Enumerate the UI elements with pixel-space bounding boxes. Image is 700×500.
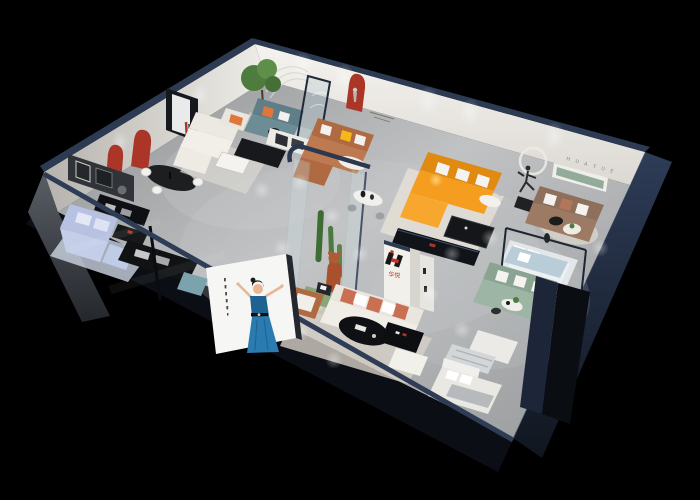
hair-bun: [251, 278, 256, 283]
table-plant: [570, 224, 575, 229]
isometric-floorplan: H U A Y U E: [0, 0, 700, 500]
dining-chair: [152, 186, 162, 194]
tree-canopy: [257, 59, 277, 79]
lit-table-lamp: [429, 173, 443, 187]
black-vase: [361, 191, 366, 198]
round-wall-plate: [118, 186, 127, 195]
brand-logo-characters: 华悦: [388, 270, 401, 280]
chair: [376, 213, 385, 220]
dining-chair: [193, 178, 203, 186]
chair: [497, 190, 505, 196]
showroom-render: H U A Y U E: [0, 0, 700, 500]
round-side-table: [549, 217, 563, 226]
tree-canopy: [265, 76, 281, 92]
facade-poster: [206, 254, 302, 354]
sash-ornament: [258, 313, 261, 316]
black-vase: [370, 194, 374, 200]
dining-chair: [141, 168, 151, 176]
decor-stool: [491, 308, 501, 314]
chair: [348, 205, 357, 212]
table-plant: [513, 297, 519, 303]
